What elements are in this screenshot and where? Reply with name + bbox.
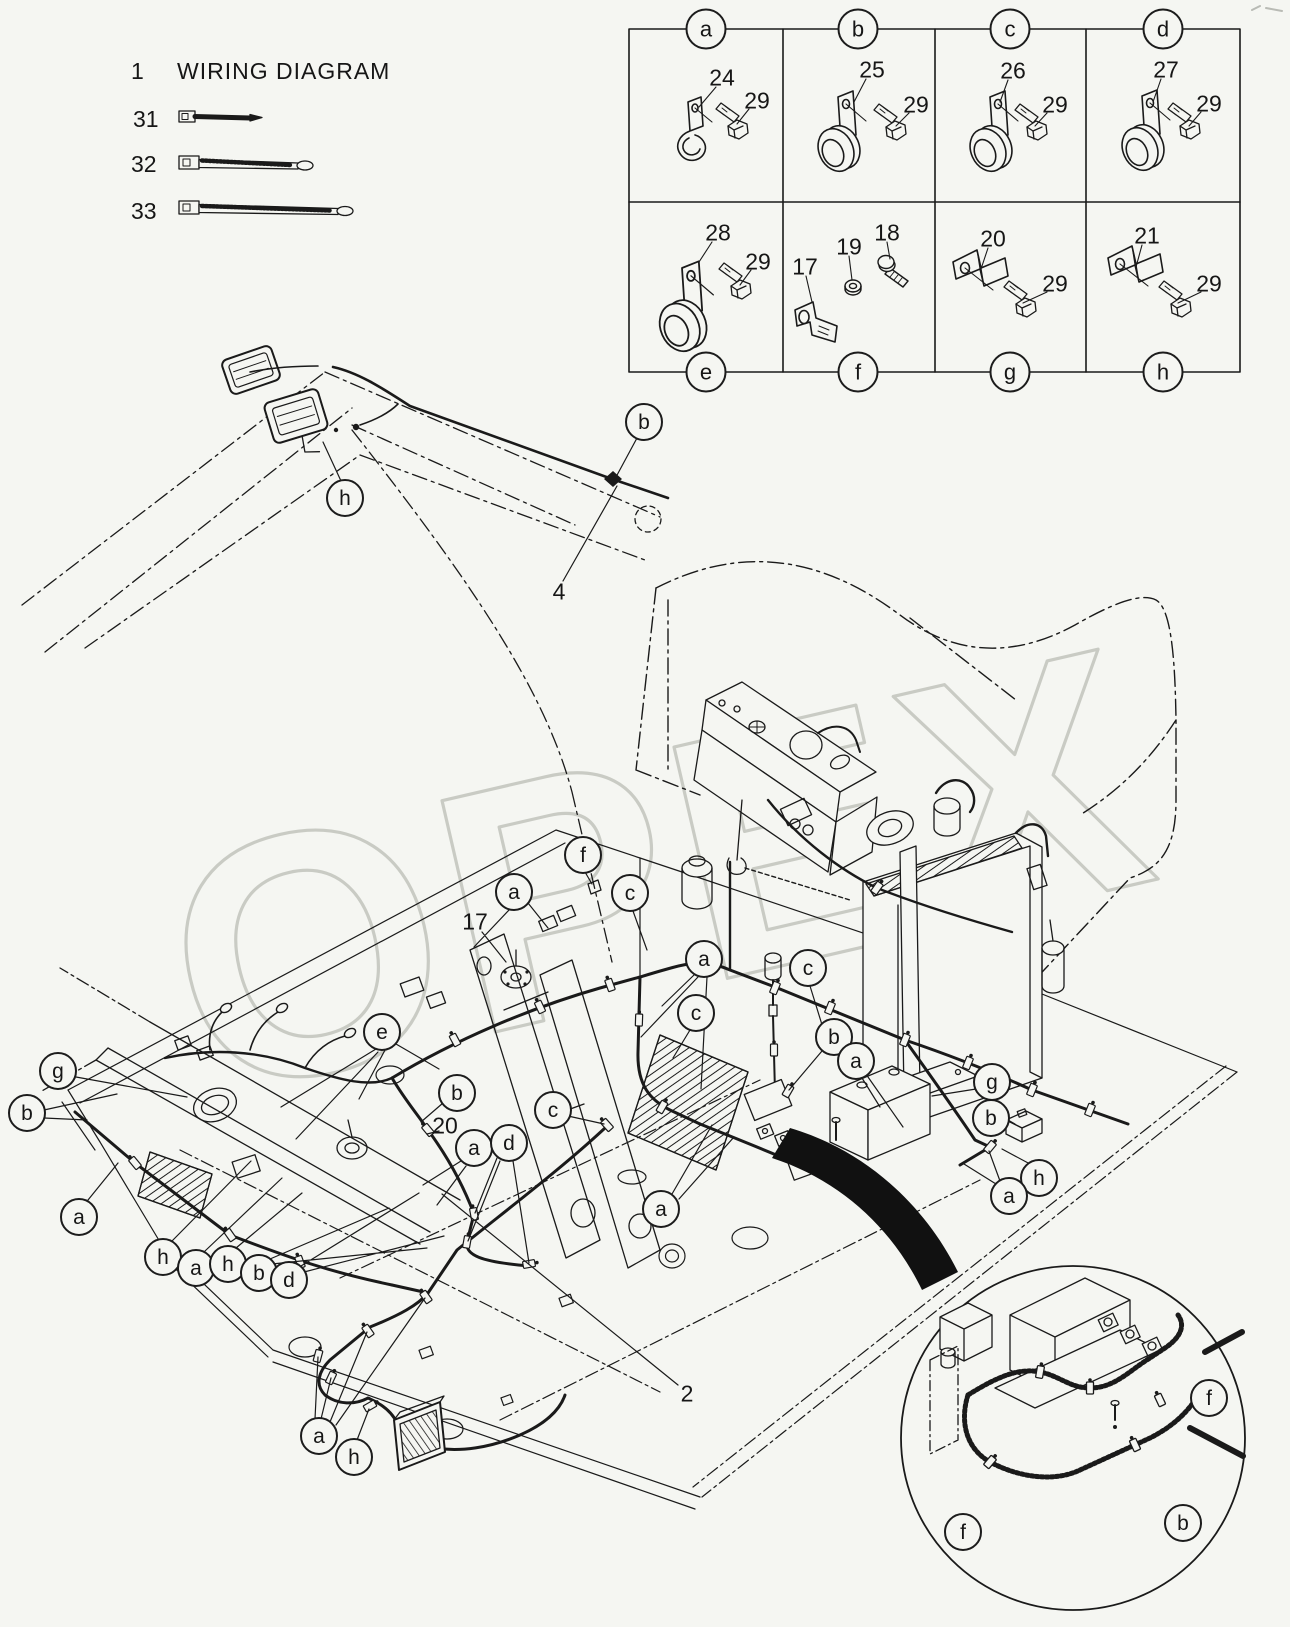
ref-label-17: 17	[462, 911, 488, 934]
callout-c: c	[534, 1091, 572, 1129]
grid-cell-letter-b: b	[838, 9, 879, 50]
callout-f: f	[944, 1513, 982, 1551]
callout-a: a	[300, 1417, 338, 1455]
callout-a: a	[455, 1129, 493, 1167]
legend-cable-ties	[179, 111, 353, 216]
callout-g: g	[973, 1063, 1011, 1101]
grid-cell-letter-e: e	[686, 352, 727, 393]
legend-ref-32: 32	[131, 153, 157, 176]
part-ref: 29	[903, 94, 929, 117]
callout-b: b	[1164, 1504, 1202, 1542]
part-ref: 29	[1042, 273, 1068, 296]
part-ref: 18	[874, 222, 900, 245]
grid-cell-letter-f: f	[838, 352, 879, 393]
callout-a: a	[60, 1198, 98, 1236]
page-item-number: 1	[131, 60, 144, 83]
ref-label-4: 4	[553, 581, 566, 604]
callout-a: a	[495, 873, 533, 911]
catalog-page: OPEX	[0, 0, 1290, 1627]
part-ref: 17	[792, 256, 818, 279]
callout-e: e	[363, 1013, 401, 1051]
grid-cell-letter-a: a	[686, 9, 727, 50]
legend-ref-31: 31	[133, 108, 159, 131]
part-ref: 29	[744, 90, 770, 113]
callout-f: f	[564, 836, 602, 874]
callout-d: d	[270, 1261, 308, 1299]
part-ref: 25	[859, 59, 885, 82]
page-title: WIRING DIAGRAM	[177, 60, 390, 83]
part-ref: 24	[709, 67, 735, 90]
part-ref: 29	[1196, 93, 1222, 116]
part-ref: 27	[1153, 59, 1179, 82]
callout-a: a	[685, 940, 723, 978]
part-ref: 29	[745, 251, 771, 274]
detail-view	[901, 1266, 1245, 1610]
ref-label-2: 2	[681, 1383, 694, 1406]
callout-c: c	[611, 874, 649, 912]
callout-f: f	[1190, 1379, 1228, 1417]
callout-a: a	[990, 1177, 1028, 1215]
part-ref: 29	[1042, 94, 1068, 117]
callout-b: b	[438, 1074, 476, 1112]
callout-c: c	[677, 994, 715, 1032]
legend-ref-33: 33	[131, 200, 157, 223]
part-ref: 28	[705, 222, 731, 245]
part-ref: 21	[1134, 225, 1160, 248]
grid-cell-letter-g: g	[990, 352, 1031, 393]
part-ref: 19	[836, 236, 862, 259]
part-ref: 29	[1196, 273, 1222, 296]
callout-h: h	[326, 479, 364, 517]
part-ref: 20	[980, 228, 1006, 251]
diagram-line-art: OPEX	[0, 0, 1290, 1627]
callout-b: b	[972, 1099, 1010, 1137]
callout-b: b	[8, 1094, 46, 1132]
part-ref: 26	[1000, 60, 1026, 83]
callout-a: a	[837, 1042, 875, 1080]
grid-cell-letter-d: d	[1143, 9, 1184, 50]
callout-b: b	[625, 403, 663, 441]
callout-d: d	[490, 1124, 528, 1162]
ref-label-20: 20	[432, 1115, 458, 1138]
parts-grid-art	[652, 79, 1201, 358]
callout-a: a	[642, 1190, 680, 1228]
callout-g: g	[39, 1052, 77, 1090]
corner-smudge	[1252, 6, 1282, 11]
callout-c: c	[789, 949, 827, 987]
callout-h: h	[335, 1438, 373, 1476]
grid-cell-letter-h: h	[1143, 352, 1184, 393]
grid-cell-letter-c: c	[990, 9, 1031, 50]
